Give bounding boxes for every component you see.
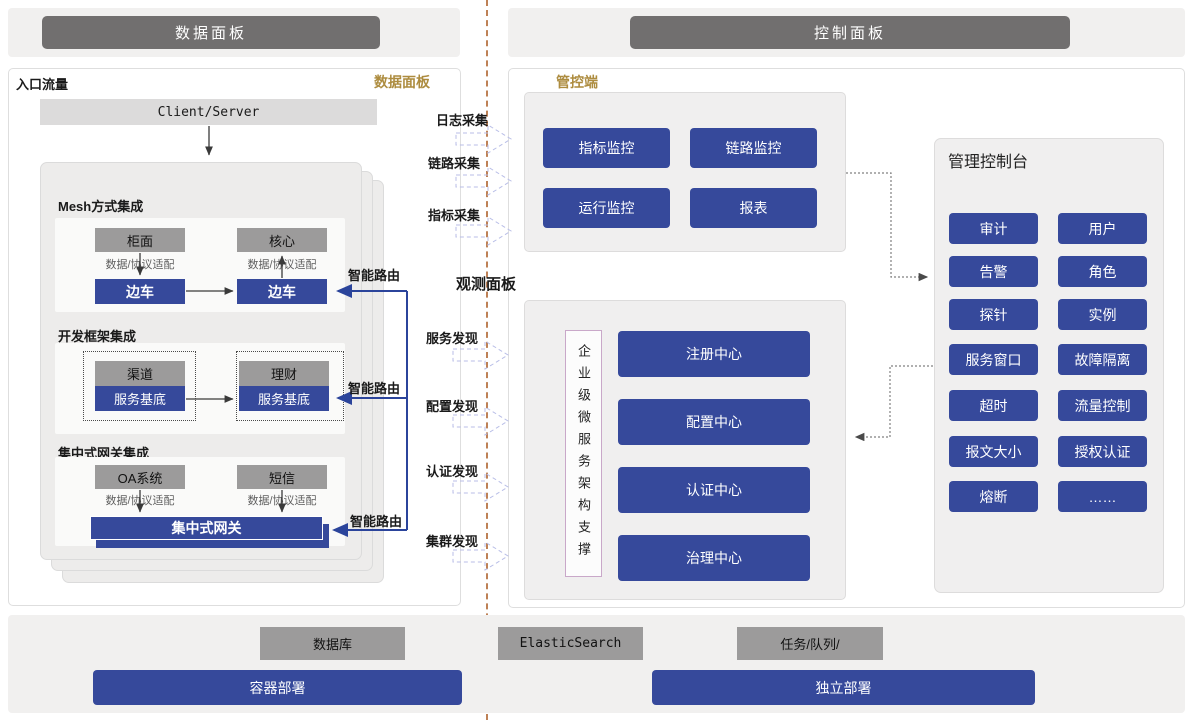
audit-button: 审计 <box>949 213 1038 244</box>
adapter-label-left: 数据/协议适配 <box>80 256 200 272</box>
governance-center-button: 治理中心 <box>618 535 810 581</box>
entry-traffic-label: 入口流量 <box>16 74 68 93</box>
sms-node: 短信 <box>237 465 327 489</box>
flow-arrow-icon <box>452 472 510 502</box>
microservice-vertical-label: 企业级微服务架构支撑 <box>574 344 593 564</box>
timeout-button: 超时 <box>949 390 1038 421</box>
adapter-label-gw-right: 数据/协议适配 <box>222 492 342 508</box>
trace-monitor-button: 链路监控 <box>690 128 817 168</box>
flow-arrow-icon <box>455 216 513 246</box>
container-deploy-bar: 容器部署 <box>93 670 462 705</box>
standalone-deploy-bar: 独立部署 <box>652 670 1035 705</box>
control-end-label: 管控端 <box>556 72 598 92</box>
wealth-node: 理财 <box>239 361 329 386</box>
authz-button: 授权认证 <box>1058 436 1147 467</box>
report-button: 报表 <box>690 188 817 228</box>
runtime-monitor-button: 运行监控 <box>543 188 670 228</box>
database-node: 数据库 <box>260 627 405 660</box>
oa-system-node: OA系统 <box>95 465 185 489</box>
management-console-title: 管理控制台 <box>948 148 1028 172</box>
message-size-button: 报文大小 <box>949 436 1038 467</box>
instance-button: 实例 <box>1058 299 1147 330</box>
flow-arrow-icon <box>452 406 510 436</box>
more-button: …… <box>1058 481 1147 512</box>
registry-center-button: 注册中心 <box>618 331 810 377</box>
monitor-box <box>524 92 846 252</box>
core-node: 核心 <box>237 228 327 252</box>
fault-isolation-button: 故障隔离 <box>1058 344 1147 375</box>
client-server-node: Client/Server <box>40 99 377 125</box>
role-button: 角色 <box>1058 256 1147 287</box>
service-base-left: 服务基底 <box>95 386 185 411</box>
adapter-label-gw-left: 数据/协议适配 <box>80 492 200 508</box>
flow-arrow-icon <box>455 166 513 196</box>
service-window-button: 服务窗口 <box>949 344 1038 375</box>
service-base-right: 服务基底 <box>239 386 329 411</box>
sidecar-node-right: 边车 <box>237 279 327 304</box>
sidecar-node-left: 边车 <box>95 279 185 304</box>
alert-button: 告警 <box>949 256 1038 287</box>
circuit-breaker-button: 熔断 <box>949 481 1038 512</box>
data-panel-tag: 数据面板 <box>374 72 430 92</box>
data-panel-header: 数据面板 <box>42 16 380 49</box>
observe-panel-label: 观测面板 <box>456 273 516 294</box>
flow-arrow-icon <box>452 541 510 571</box>
metric-monitor-button: 指标监控 <box>543 128 670 168</box>
smart-route-label-1: 智能路由 <box>348 265 400 284</box>
central-gateway-bar: 集中式网关 <box>90 516 323 540</box>
adapter-label-right: 数据/协议适配 <box>222 256 342 272</box>
auth-center-button: 认证中心 <box>618 467 810 513</box>
elasticsearch-node: ElasticSearch <box>498 627 643 660</box>
control-panel-header: 控制面板 <box>630 16 1070 49</box>
flow-arrow-icon <box>452 340 510 370</box>
flow-control-button: 流量控制 <box>1058 390 1147 421</box>
mesh-section-title: Mesh方式集成 <box>58 196 143 215</box>
counter-node: 柜面 <box>95 228 185 252</box>
microservice-vertical-strip: 企业级微服务架构支撑 <box>565 330 602 577</box>
smart-route-label-3: 智能路由 <box>350 511 402 530</box>
architecture-diagram: 数据面板 控制面板 入口流量 数据面板 Client/Server Mesh方式… <box>0 0 1189 720</box>
smart-route-label-2: 智能路由 <box>348 378 400 397</box>
task-queue-node: 任务/队列/ <box>737 627 883 660</box>
user-button: 用户 <box>1058 213 1147 244</box>
channel-node: 渠道 <box>95 361 185 386</box>
flow-arrow-icon <box>455 124 513 154</box>
config-center-button: 配置中心 <box>618 399 810 445</box>
probe-button: 探针 <box>949 299 1038 330</box>
